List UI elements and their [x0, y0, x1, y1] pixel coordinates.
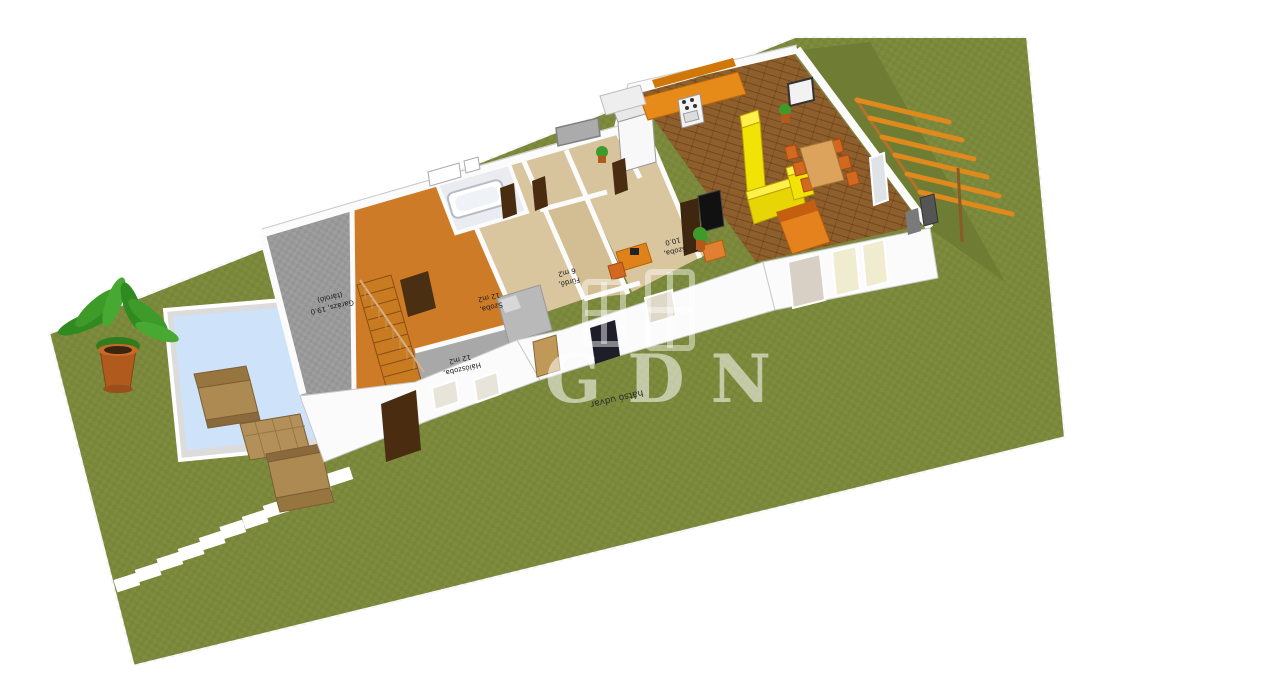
terrace-door	[788, 254, 825, 308]
desk-monitor	[630, 248, 639, 255]
tv	[698, 190, 724, 232]
front-window-curtain	[832, 246, 860, 296]
front-window-curtain	[862, 239, 888, 288]
wall-picture-frame	[788, 78, 814, 106]
watermark-text: GDN	[545, 340, 797, 418]
terrace-glass	[870, 153, 888, 205]
scene-canvas: Garázs, 19.0 (tároló) Szoba, 12 m2 Hálós…	[0, 0, 1280, 690]
floorplan-render: Garázs, 19.0 (tároló) Szoba, 12 m2 Hálós…	[0, 0, 1280, 690]
